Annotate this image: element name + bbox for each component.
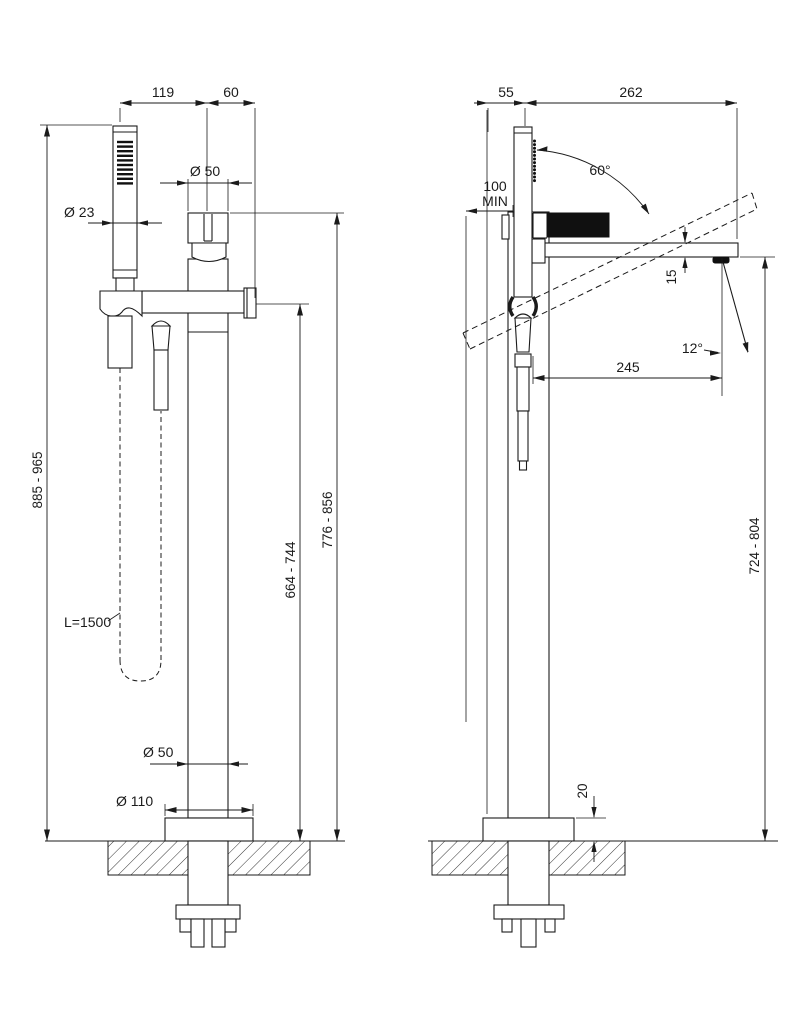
side-floor-hatch-right <box>548 841 625 875</box>
dim-min-clearance-value: 100 <box>483 178 507 194</box>
dim-spout-reach: 262 <box>619 84 643 100</box>
dim-column-diameter: Ø 50 <box>143 744 174 760</box>
front-hose-connector-mid <box>152 321 170 410</box>
front-column <box>188 259 228 818</box>
dim-stream-horizontal-reach: 245 <box>616 359 640 375</box>
dim-overall-height: 885 - 965 <box>30 451 45 508</box>
side-spout-mount <box>532 239 545 263</box>
front-hose-dashed <box>120 368 161 681</box>
side-aerator <box>713 257 729 263</box>
dim-base-plate-diameter: Ø 110 <box>116 793 153 809</box>
dim-swivel-angle: 60° <box>589 162 610 178</box>
side-floor-hatch-left <box>432 841 508 875</box>
dim-stream-angle: 12° <box>682 340 703 356</box>
front-floor-hatch-right <box>228 841 310 875</box>
side-base-plate <box>483 818 574 841</box>
front-hose-connector-left <box>108 316 132 368</box>
dim-min-clearance-suffix: MIN <box>482 193 508 209</box>
front-hand-shower <box>113 126 137 291</box>
dim-handle-diameter: Ø 50 <box>190 163 221 179</box>
dim-spout-offset: 60 <box>223 84 239 100</box>
front-top-handle <box>188 213 228 262</box>
technical-drawing-sheet: 119 60 Ø 50 Ø 23 885 - 965 664 - 744 <box>0 0 795 1024</box>
front-base-plate <box>165 818 253 841</box>
front-dimensions: 119 60 Ø 50 Ø 23 885 - 965 664 - 744 <box>30 84 344 841</box>
side-spray-dots <box>533 140 536 183</box>
dim-handshower-depth-offset: 55 <box>498 84 514 100</box>
drawing-canvas: 119 60 Ø 50 Ø 23 885 - 965 664 - 744 <box>0 0 795 1024</box>
front-shower-holder <box>100 291 142 316</box>
side-spout <box>539 243 738 257</box>
dim-spout-outlet-height: 664 - 744 <box>283 541 298 599</box>
front-body-arm <box>142 288 256 318</box>
dim-handshower-offset: 119 <box>152 84 175 100</box>
dim-hose-length: L=1500 <box>64 614 111 630</box>
front-view: 119 60 Ø 50 Ø 23 885 - 965 664 - 744 <box>30 84 345 947</box>
dim-base-plate-height: 20 <box>575 783 590 798</box>
dim-handle-top-height: 776 - 856 <box>320 491 335 548</box>
side-view: 55 262 100 MIN 60° 15 <box>428 84 778 947</box>
front-side-outlet <box>244 288 256 318</box>
dim-spout-underside-height: 724 - 804 <box>747 517 762 575</box>
front-floor-hatch-left <box>108 841 188 875</box>
dim-handshower-diameter: Ø 23 <box>64 204 95 220</box>
dim-spout-thickness: 15 <box>664 269 679 284</box>
side-handle <box>547 213 609 237</box>
